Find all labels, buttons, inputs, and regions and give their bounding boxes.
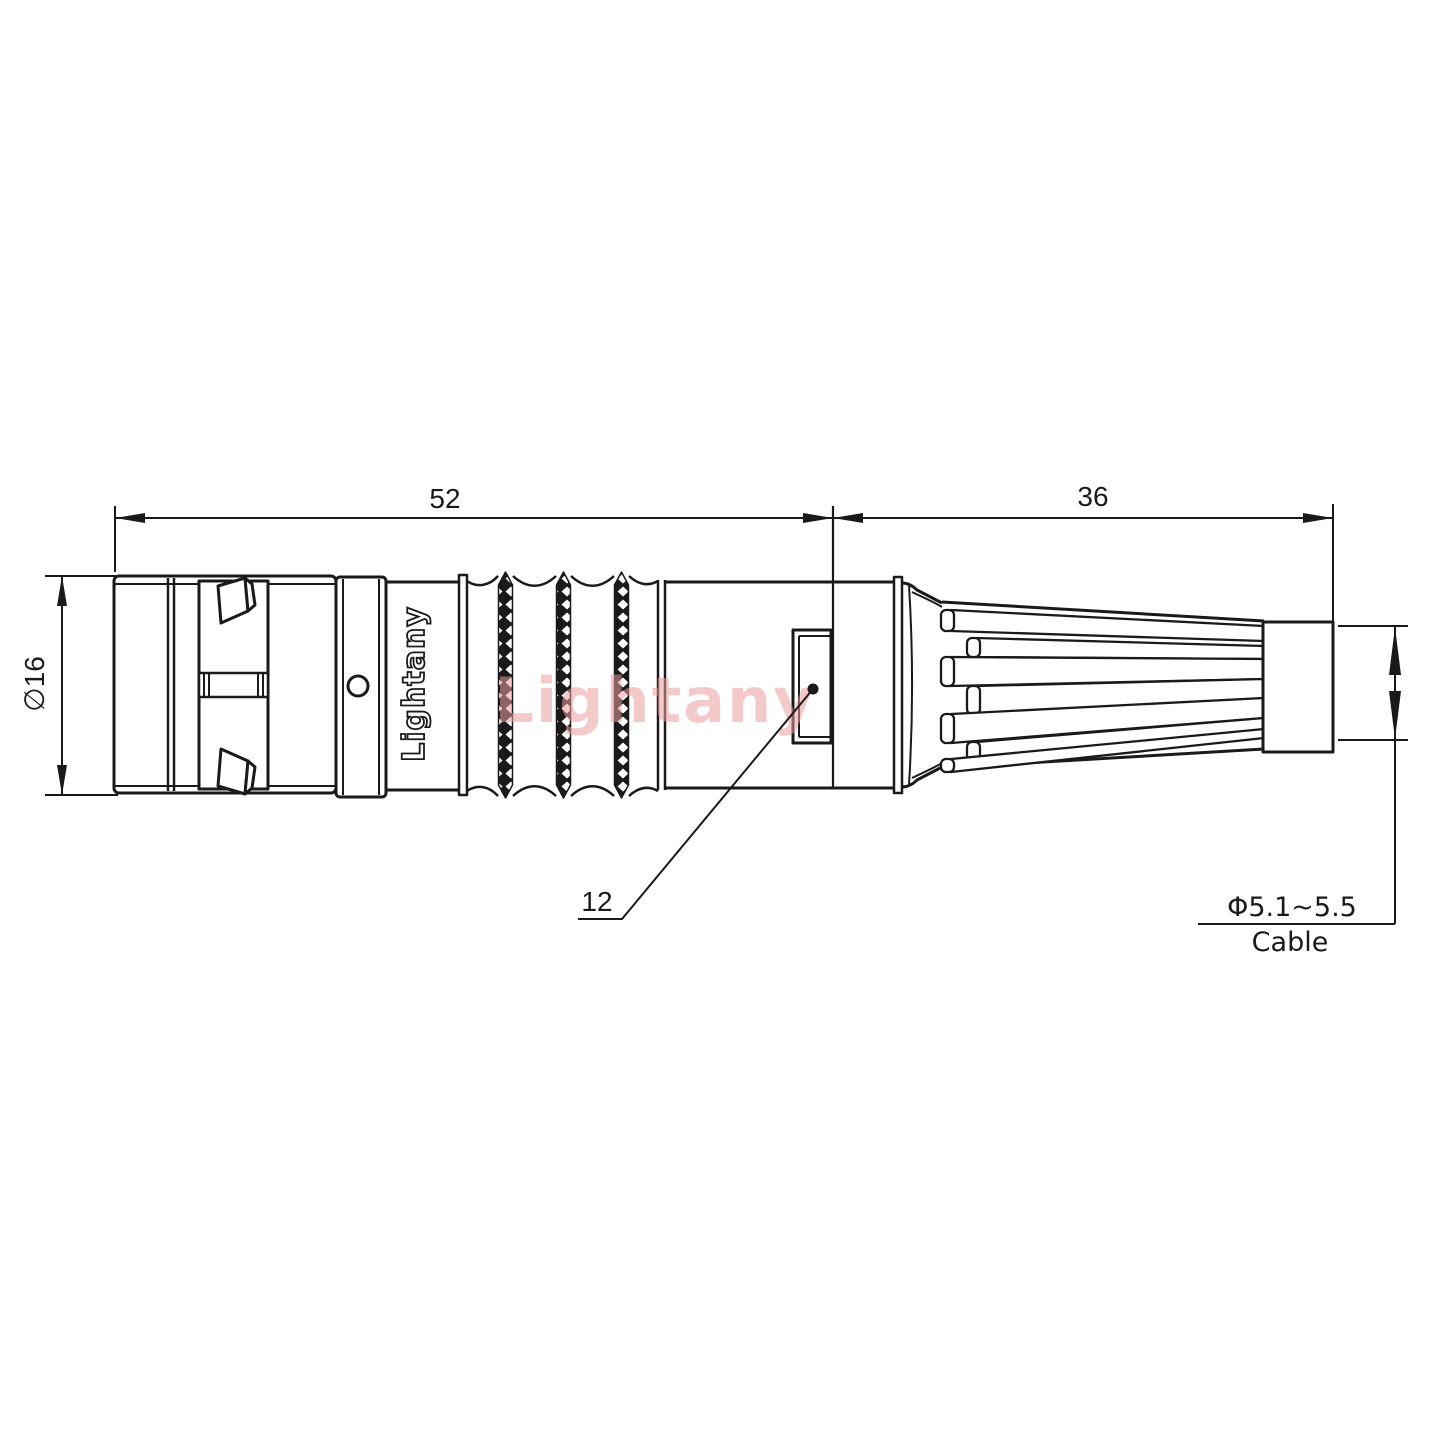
arrowhead-right xyxy=(1303,513,1333,523)
arrowhead-down xyxy=(57,765,67,795)
arrowhead-up xyxy=(1389,627,1401,675)
dimension-36 xyxy=(833,504,1333,621)
dim-diameter16-label: ∅16 xyxy=(19,656,50,712)
cable-word-label: Cable xyxy=(1252,927,1329,958)
dim-12-label: 12 xyxy=(581,886,612,917)
dimension-52 xyxy=(115,506,833,572)
dimension-diameter-16 xyxy=(45,576,118,795)
dim-36-label: 36 xyxy=(1077,481,1108,512)
lip-ring xyxy=(459,575,467,795)
arrowhead-left xyxy=(833,513,863,523)
body-marking-text: Lightany xyxy=(397,606,432,762)
watermark-text: Lightany xyxy=(494,664,815,737)
connector-side-view xyxy=(114,506,1333,798)
arrowhead-left xyxy=(115,513,145,523)
coupling-nut xyxy=(658,506,833,790)
index-hole xyxy=(348,676,368,696)
arrowhead-right xyxy=(803,513,833,523)
boot-fins xyxy=(941,610,1264,772)
dim-52-label: 52 xyxy=(429,483,460,514)
cable-diameter-label: Φ5.1~5.5 xyxy=(1227,892,1357,923)
key-block xyxy=(199,578,268,794)
connector-technical-drawing: Lightany Lightany xyxy=(0,0,1440,1440)
arrowhead-down xyxy=(1389,691,1401,739)
strain-relief-boot xyxy=(902,583,1333,787)
end-shell xyxy=(833,577,902,793)
cable-entry-end xyxy=(1263,622,1333,752)
key-track xyxy=(199,673,268,697)
drawing-canvas: Lightany Lightany xyxy=(0,0,1440,1440)
arrowhead-up xyxy=(57,576,67,606)
ring-band xyxy=(336,577,386,797)
